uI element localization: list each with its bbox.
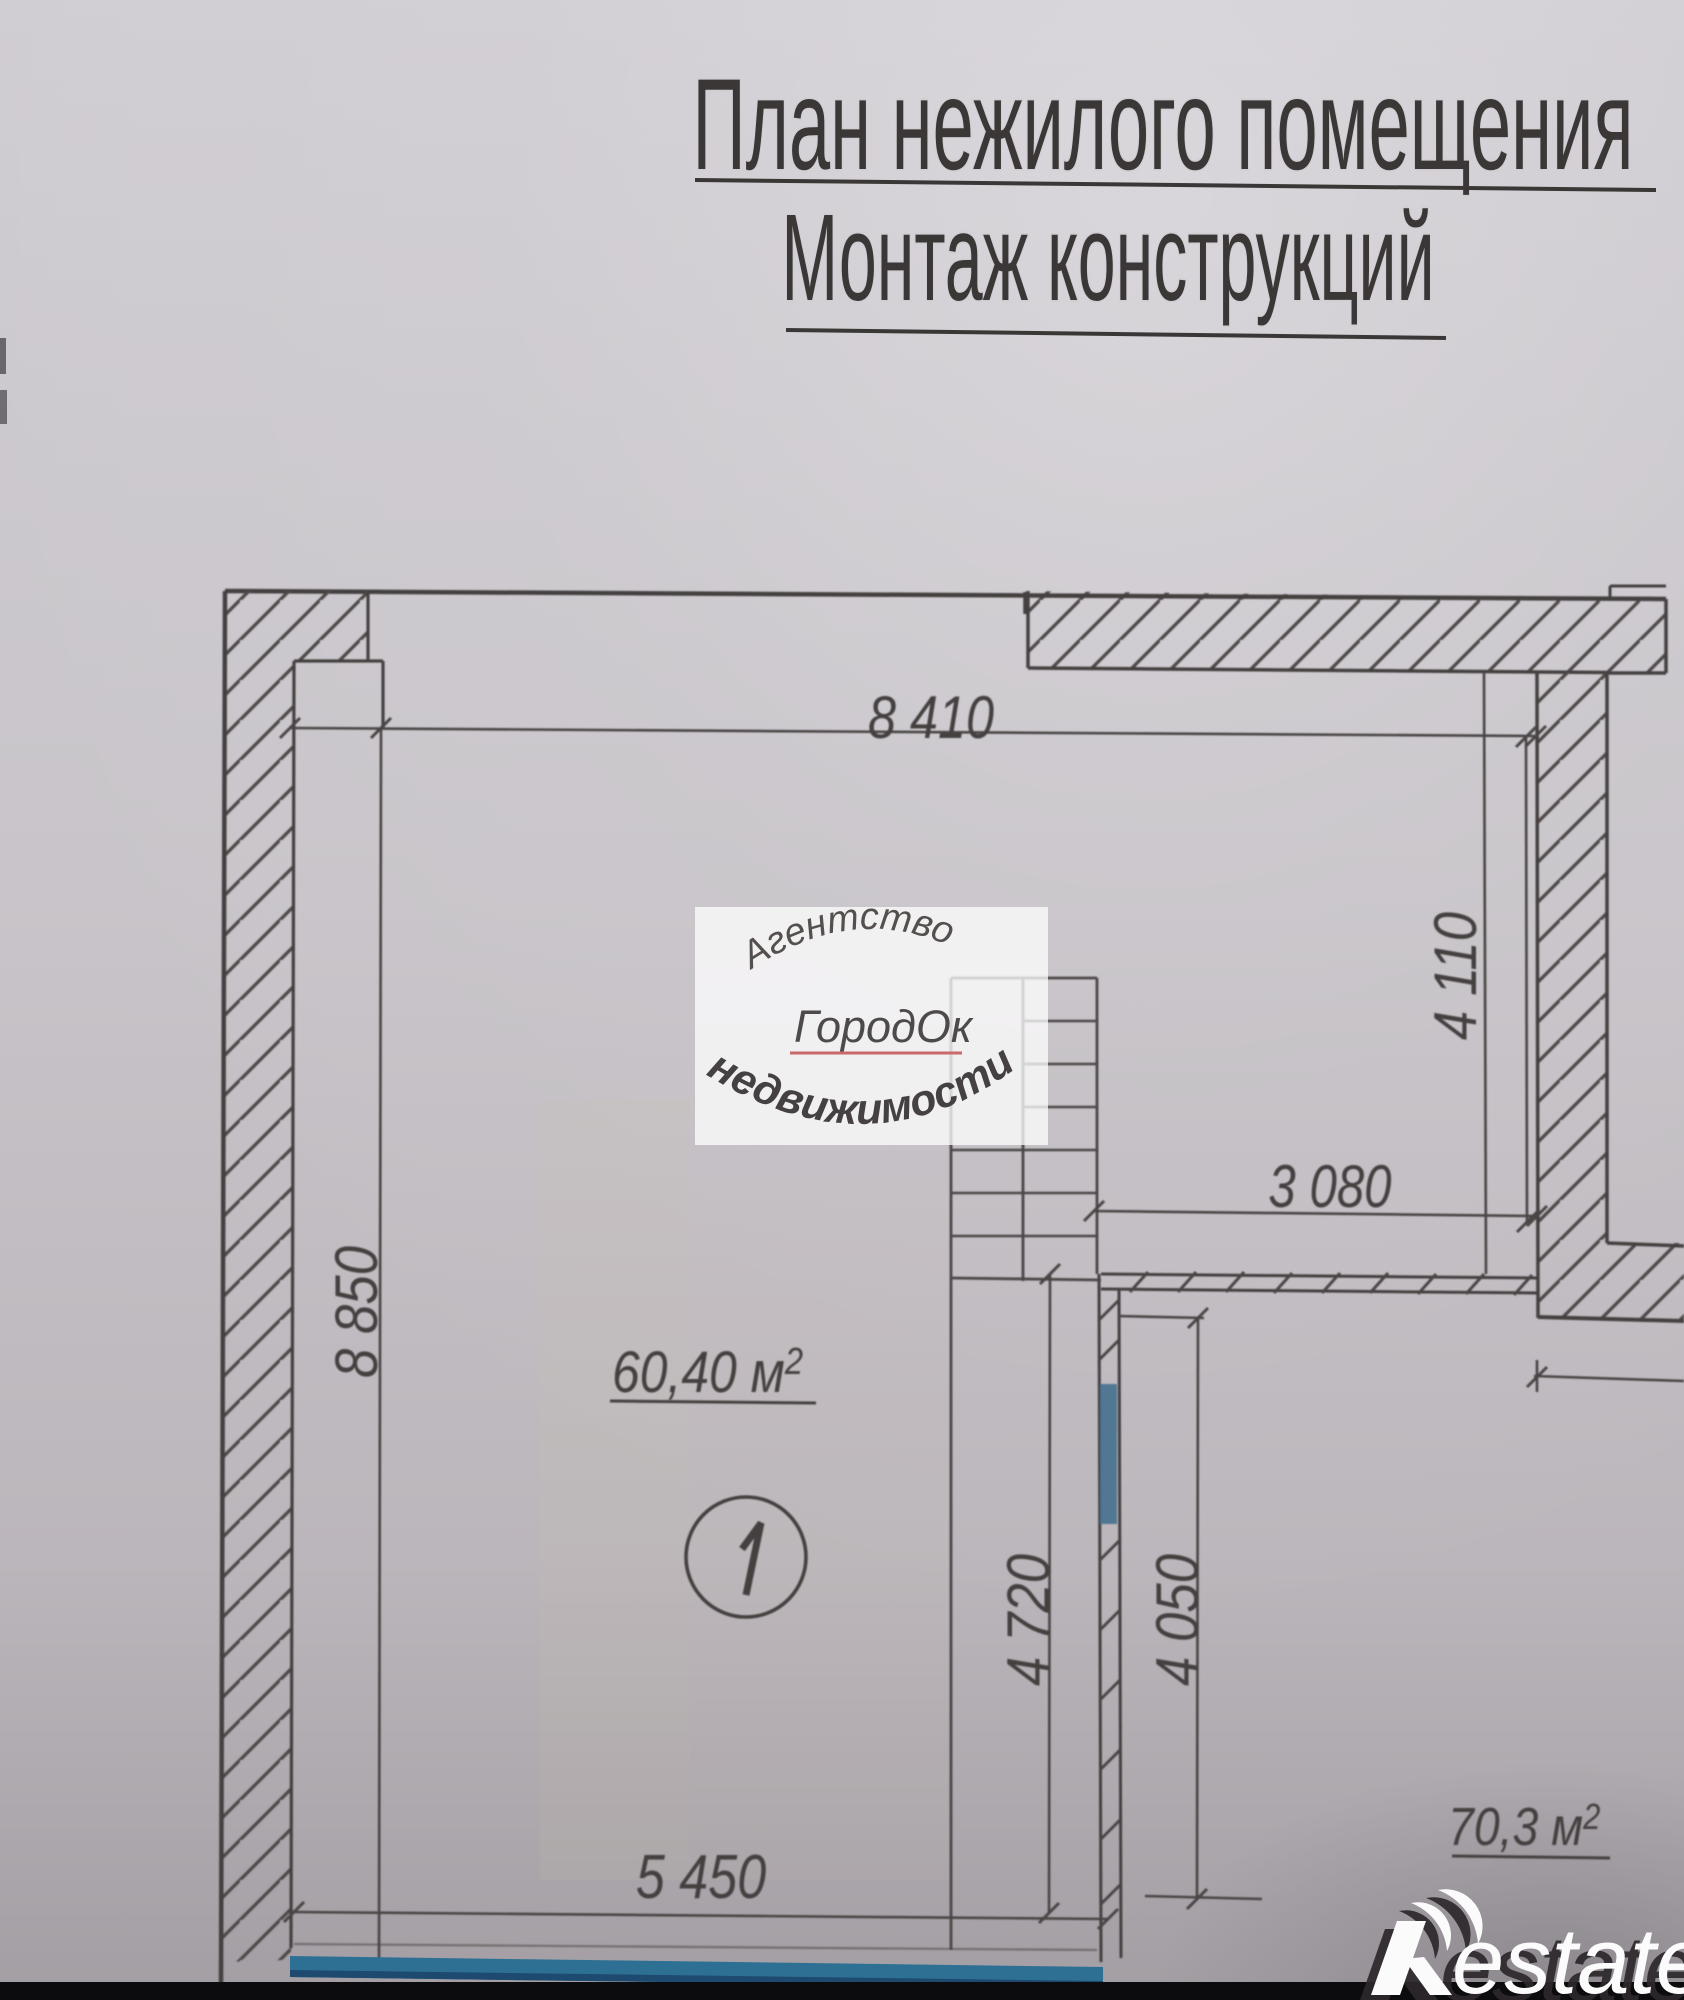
svg-text:ГородОк: ГородОк bbox=[794, 1001, 974, 1052]
svg-text:3 080: 3 080 bbox=[1268, 1152, 1392, 1220]
svg-text:4 050: 4 050 bbox=[1144, 1554, 1211, 1686]
svg-text:8 850: 8 850 bbox=[323, 1246, 390, 1378]
svg-text:estate: estate bbox=[1452, 1908, 1684, 2000]
svg-text:4 110: 4 110 bbox=[1422, 912, 1489, 1040]
svg-text:Монтаж конструкций: Монтаж конструкций bbox=[781, 190, 1434, 327]
svg-text:План нежилого помещения: План нежилого помещения bbox=[692, 52, 1633, 197]
svg-text:8 410: 8 410 bbox=[868, 684, 994, 751]
svg-text:70,3 м2: 70,3 м2 bbox=[1448, 1796, 1601, 1857]
svg-text:5 450: 5 450 bbox=[636, 1843, 766, 1912]
svg-text:4 720: 4 720 bbox=[995, 1554, 1062, 1686]
svg-text:60,40 м2: 60,40 м2 bbox=[612, 1340, 803, 1405]
